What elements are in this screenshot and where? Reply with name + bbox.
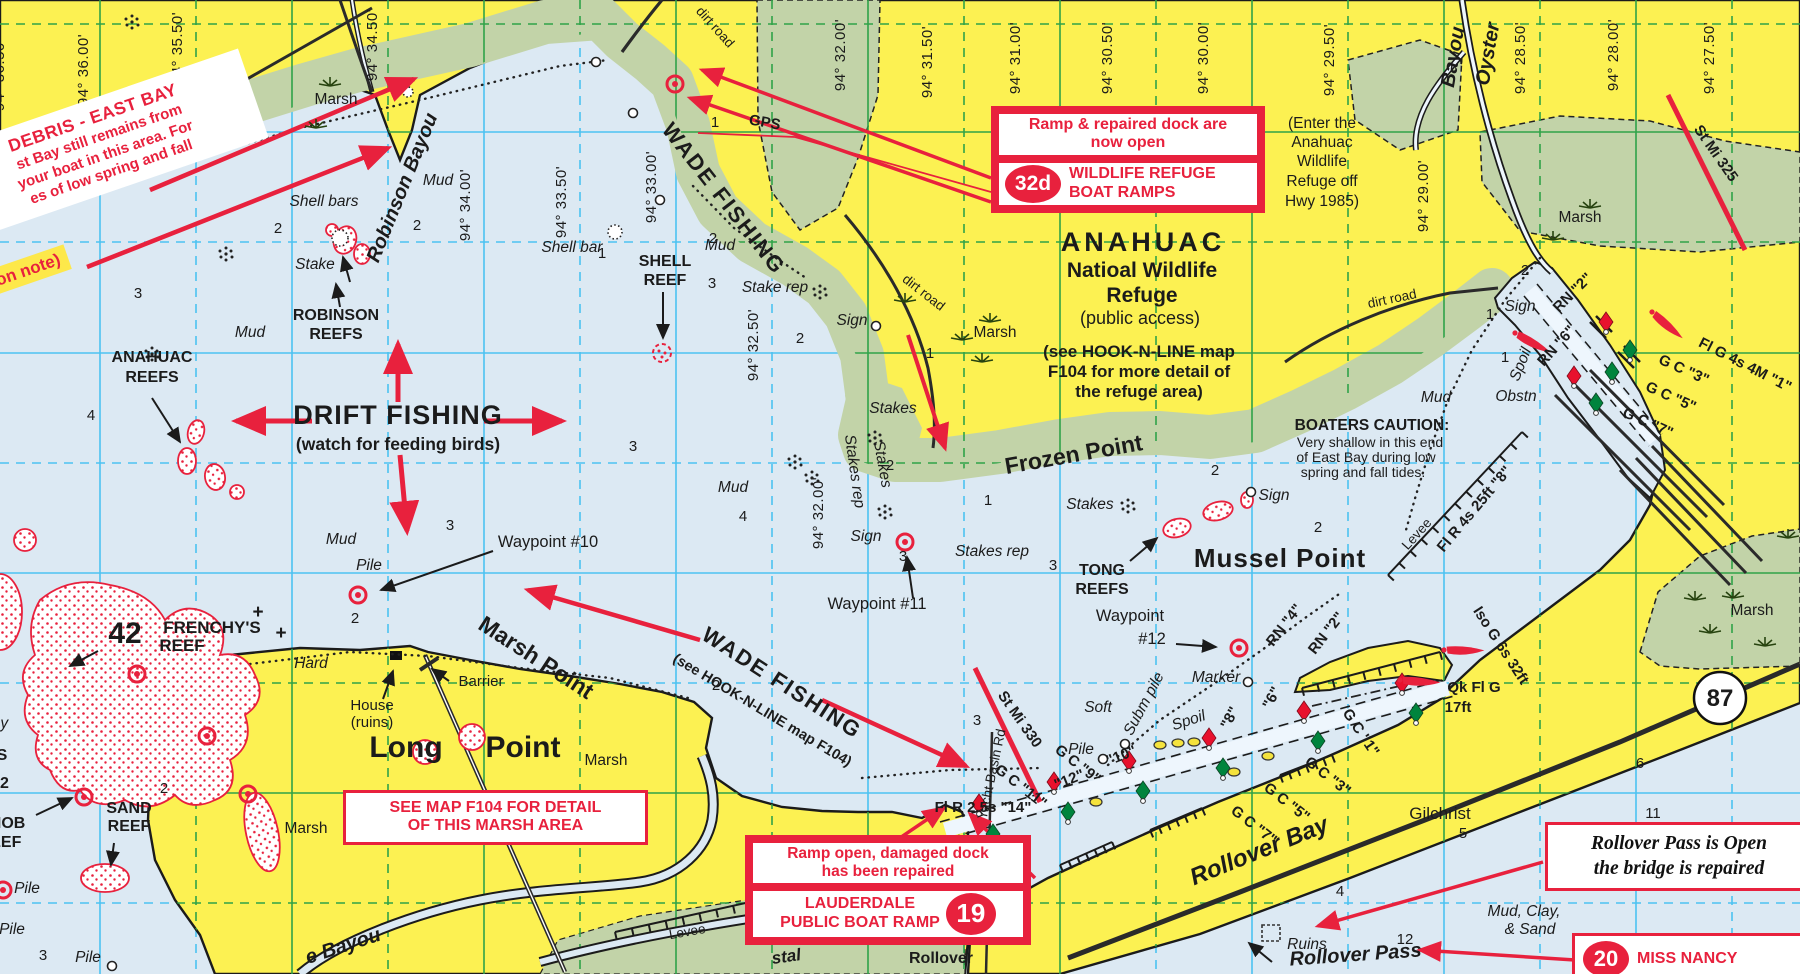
map-label: 4 [87, 407, 95, 424]
map-label: 1 [711, 114, 719, 131]
map-label: Hard [294, 655, 329, 672]
map-label: Barrier [458, 673, 503, 690]
map-label: SHELL [639, 253, 692, 270]
pile-circle-icon [629, 109, 638, 118]
map-label: Long [369, 731, 442, 764]
map-label: REEFS [1075, 581, 1129, 598]
map-label: Marsh [973, 324, 1016, 341]
map-label: Sign [1258, 487, 1289, 504]
map-label: ANAHUAC [1061, 227, 1226, 257]
map-label: Stakes [869, 400, 917, 417]
map-label: 1 [1501, 349, 1509, 366]
map-label: Waypoint #10 [498, 533, 598, 551]
spoil-dot-icon [1172, 739, 1184, 747]
ramp-name: PUBLIC BOAT RAMP [780, 914, 940, 932]
map-label: 94° 27.50' [1701, 22, 1718, 94]
map-label: Mud [1421, 389, 1453, 406]
callout-line: OF THIS MARSH AREA [350, 817, 641, 835]
map-label: 4 [739, 508, 747, 525]
callout-line: Ramp & repaired dock are [1005, 116, 1251, 134]
map-label: 94° 29.50' [1321, 24, 1338, 96]
spoil-dot-icon [1262, 752, 1274, 760]
map-label: 2 [351, 610, 359, 627]
callout-line: the bridge is repaired [1556, 856, 1800, 881]
map-label: Stake [295, 256, 335, 273]
map-label: 94° 28.50' [1512, 22, 1529, 94]
map-label: Refuge [1106, 284, 1177, 307]
map-label: 5 [1459, 825, 1467, 842]
map-label: 2 [1211, 462, 1219, 479]
map-label: (ruins) [351, 714, 394, 731]
map-label: Pile [14, 880, 40, 897]
map-label: 3 [39, 947, 47, 964]
callout-line: Ramp open, damaged dock [759, 845, 1017, 863]
map-label: Mussel Point [1194, 543, 1366, 573]
map-label: Pile [356, 557, 382, 574]
map-label: REEFS [309, 326, 363, 343]
map-label: (see HOOK-N-LINE map [1043, 342, 1235, 361]
map-label: Hwy 1985) [1285, 193, 1359, 210]
map-label: ANAHUAC [112, 349, 193, 366]
nautical-chart-map: 94° 36.50'94° 36.00'94° 35.50'94° 34.50'… [0, 0, 1800, 974]
refuge-boat-ramps-callout: Ramp & repaired dock are now open 32d WI… [991, 106, 1265, 213]
map-number-badge: 32d [1005, 165, 1061, 203]
map-label: Very shallow in this end [1297, 434, 1443, 450]
map-label: 94° 32.00' [810, 477, 827, 549]
map-label: House [350, 697, 393, 714]
map-label: Marsh [584, 752, 627, 769]
pile-circle-icon [1244, 678, 1253, 687]
map-label: Gilchrist [1409, 804, 1471, 823]
map-label: Marsh [1558, 209, 1601, 226]
pile-circle-icon [108, 962, 117, 971]
map-label: 94° 36.50' [0, 39, 8, 111]
map-label: #2 [0, 775, 9, 792]
map-label: 2 [1521, 262, 1529, 279]
map-label: REEFS [125, 369, 179, 386]
ramp-name: LAUDERDALE [780, 895, 940, 913]
spoil-dot-icon [1154, 741, 1166, 749]
map-label: Mud [705, 237, 737, 254]
map-label: 2 [413, 217, 421, 234]
spoil-dot-icon [1188, 738, 1200, 746]
lauderdale-ramp-callout: Ramp open, damaged dock has been repaire… [745, 835, 1031, 945]
map-label: REEF [159, 636, 204, 655]
map-label: 87 [1707, 685, 1734, 712]
map-label: 94° 33.00' [643, 151, 660, 223]
map-label: Obstn [1495, 388, 1536, 405]
map-label: Stakes rep [955, 543, 1029, 560]
map-label: #12 [1138, 630, 1166, 648]
spoil-dot-icon [1090, 798, 1102, 806]
map-label: ay [0, 715, 9, 732]
map-label: Sign [850, 528, 881, 545]
pile-circle-icon [872, 322, 881, 331]
map-label: 6 [1636, 755, 1644, 772]
map-label: Pile [0, 921, 25, 938]
map-label: of East Bay during low [1296, 449, 1436, 465]
map-label: Shell bars [290, 193, 359, 210]
map-label: FRENCHY'S [163, 618, 261, 637]
callout-line: has been repaired [759, 863, 1017, 881]
map-label: Natioal Wildlife [1067, 259, 1217, 282]
map-label: 3 [973, 712, 981, 729]
ramp-name: WILDLIFE REFUGE [1069, 165, 1216, 183]
map-label: 2 [796, 330, 804, 347]
ramp-name: BOAT RAMPS [1069, 184, 1216, 202]
map-label: 2 [274, 220, 282, 237]
map-label: 3 [134, 285, 142, 302]
map-label: Waypoint [1096, 607, 1165, 625]
map-label: Mud [326, 531, 358, 548]
callout-line: SEE MAP F104 FOR DETAIL [350, 799, 641, 817]
map-label: Refuge off [1286, 173, 1358, 190]
pile-circle-icon [1247, 488, 1256, 497]
map-label: 94° 32.00' [832, 19, 849, 91]
map-label: Marker [1192, 669, 1241, 686]
map-number-badge: 20 [1583, 941, 1629, 974]
pile-circle-icon [592, 58, 601, 67]
map-label: Anahuac [1291, 134, 1352, 151]
map-label: SAND [106, 800, 151, 817]
map-label: Soft [1084, 699, 1112, 716]
map-label: Waypoint #11 [827, 595, 926, 613]
map-label: 94° 36.00' [75, 34, 92, 106]
map-label: S NOB [0, 815, 25, 832]
map-label: 3 [1049, 557, 1057, 574]
map-label: & Sand [1505, 921, 1557, 938]
map-label: 2 [160, 780, 168, 797]
map-label: 2 [1314, 519, 1322, 536]
map-label: 94° 28.00' [1605, 19, 1622, 91]
map-label: REEF [0, 834, 22, 851]
map-label: REEF [108, 818, 151, 835]
map-number-badge: 19 [946, 893, 996, 935]
map-label: Shell bar [541, 239, 603, 256]
rollover-pass-open-callout: Rollover Pass is Open the bridge is repa… [1545, 822, 1800, 891]
map-label: Qk Fl G [1447, 679, 1500, 696]
map-label: Pile [75, 949, 101, 966]
map-label: 94° 32.50' [745, 309, 762, 381]
map-label: 1 [926, 345, 934, 362]
map-label: 94° 30.00' [1195, 22, 1212, 94]
callout-line: now open [1005, 134, 1251, 152]
map-label: the refuge area) [1075, 382, 1203, 401]
map-label: (public access) [1080, 308, 1200, 328]
map-label: DRIFT FISHING [293, 400, 503, 430]
map-label: Mud, Clay, [1488, 903, 1561, 920]
map-label: 94° 34.50' [364, 9, 381, 81]
map-label: 3 [708, 275, 716, 292]
map-label: spring and fall tides. [1301, 464, 1426, 480]
map-label: Sign [836, 312, 867, 329]
map-label: 1 [1486, 306, 1494, 323]
map-label: 1 [984, 492, 992, 509]
map-label: Marsh [1730, 602, 1773, 619]
map-label: 42 [108, 617, 141, 650]
callout-line: Rollover Pass is Open [1556, 831, 1800, 856]
map-label: + [275, 623, 286, 644]
map-label: 11 [1645, 805, 1661, 822]
map-label: (watch for feeding birds) [296, 434, 500, 454]
map-label: 94° 30.50' [1099, 22, 1116, 94]
map-label: ROBINSON [293, 307, 379, 324]
map-label: Mud [423, 172, 455, 189]
map-label: 17ft [1445, 699, 1472, 716]
map-label: Stakes [1066, 496, 1114, 513]
see-map-f104-callout: SEE MAP F104 FOR DETAIL OF THIS MARSH AR… [343, 790, 648, 845]
map-label: Wildlife [1297, 153, 1347, 170]
map-label: Rollover [909, 950, 973, 967]
map-label: 94° 31.00' [1007, 22, 1024, 94]
map-label: 3 [446, 517, 454, 534]
chart-canvas: 94° 36.50'94° 36.00'94° 35.50'94° 34.50'… [0, 0, 1800, 974]
map-label: Sign [1504, 298, 1535, 315]
map-label: 3 [899, 548, 907, 565]
map-label: 94° 34.00' [457, 169, 474, 241]
spoil-dot-icon [1228, 768, 1240, 776]
map-label: 94° 29.00' [1415, 160, 1432, 232]
map-label: 4 [1336, 883, 1344, 900]
map-label: Stake rep [742, 279, 809, 296]
map-label: 3 [629, 438, 637, 455]
map-label: 94° 31.50' [919, 26, 936, 98]
map-label: Mud [235, 324, 267, 341]
map-label: BOATERS CAUTION: [1295, 417, 1450, 434]
map-label: Marsh [284, 820, 327, 837]
map-label: Mud [718, 479, 750, 496]
map-label: TONG [1079, 562, 1125, 579]
map-label: Marsh [314, 91, 357, 108]
map-label: 94° 33.50' [553, 166, 570, 238]
map-label: (Enter the [1288, 115, 1356, 132]
map-label: F104 for more detail of [1048, 362, 1231, 381]
map-label: Point [486, 731, 561, 764]
map-label: REEF [644, 272, 687, 289]
map-label: 'S [0, 747, 8, 764]
camp-name: MISS NANCY [1637, 950, 1737, 968]
miss-nancy-callout: 20 MISS NANCY [1572, 933, 1800, 974]
